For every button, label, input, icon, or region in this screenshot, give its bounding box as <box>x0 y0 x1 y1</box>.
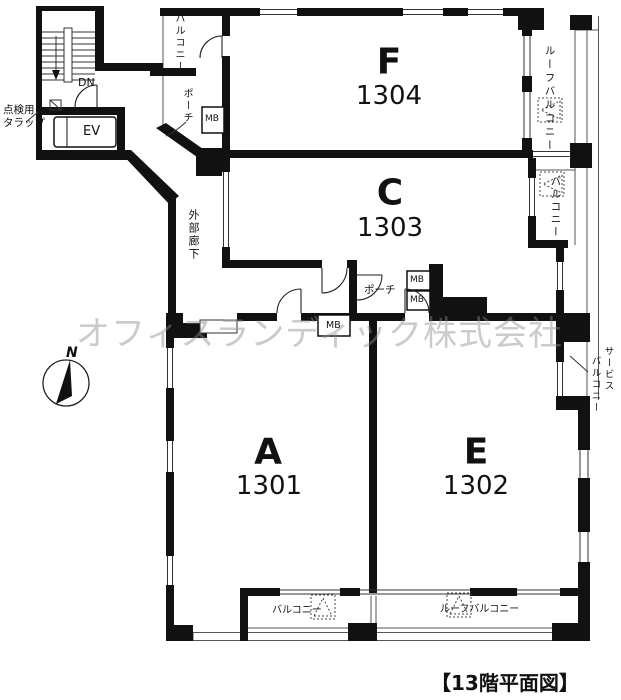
service-balcony-label-line1: サービス <box>603 346 613 392</box>
unit-a-number: 1301 <box>236 471 302 501</box>
unit-f-label: F <box>377 42 402 83</box>
porch-center-label: ポーチ <box>364 285 396 296</box>
porch-north-label: ポーチ <box>181 88 191 124</box>
unit-e-label: E <box>464 432 489 473</box>
balcony-east-label: バルコニー <box>550 176 561 239</box>
entry-balcony-label: バルコニー <box>173 13 183 73</box>
balcony-south-label: バルコニー <box>272 606 322 616</box>
north-compass <box>43 360 89 406</box>
unit-a-label: A <box>254 432 282 473</box>
floor-title: 【13階平面図】 <box>431 667 579 696</box>
service-balcony-label-line2: バルコニー <box>590 356 600 414</box>
unit-e-number: 1302 <box>443 471 509 501</box>
unit-c-label: C <box>377 173 403 214</box>
meter-box-label: MB <box>205 115 219 124</box>
staircase <box>42 28 95 110</box>
watermark: オフィスランディック株式会社 <box>76 306 563 355</box>
roof-balcony-east-label: ルーフバルコニー <box>544 45 555 153</box>
inspection-ladder-label-line2: タラップ <box>3 118 45 129</box>
unit-c-number: 1303 <box>357 213 423 243</box>
elevator-label: EV <box>83 125 100 138</box>
unit-f-number: 1304 <box>356 81 422 111</box>
stairs-down-label: DN <box>78 77 95 88</box>
down-arrow-icon <box>52 70 60 80</box>
outer-corridor-label: 外部廊下 <box>188 209 199 261</box>
meter-box-label: MB <box>410 276 424 285</box>
inspection-ladder-label-line1: 点検用 <box>3 105 35 116</box>
meter-box-label: MB <box>410 296 424 305</box>
floor-plan: DN EV 点検用 タラップ バルコニー ポーチ MB F 1304 ルーフバル… <box>0 0 621 700</box>
roof-balcony-south-label: ルーフバルコニー <box>440 605 519 615</box>
